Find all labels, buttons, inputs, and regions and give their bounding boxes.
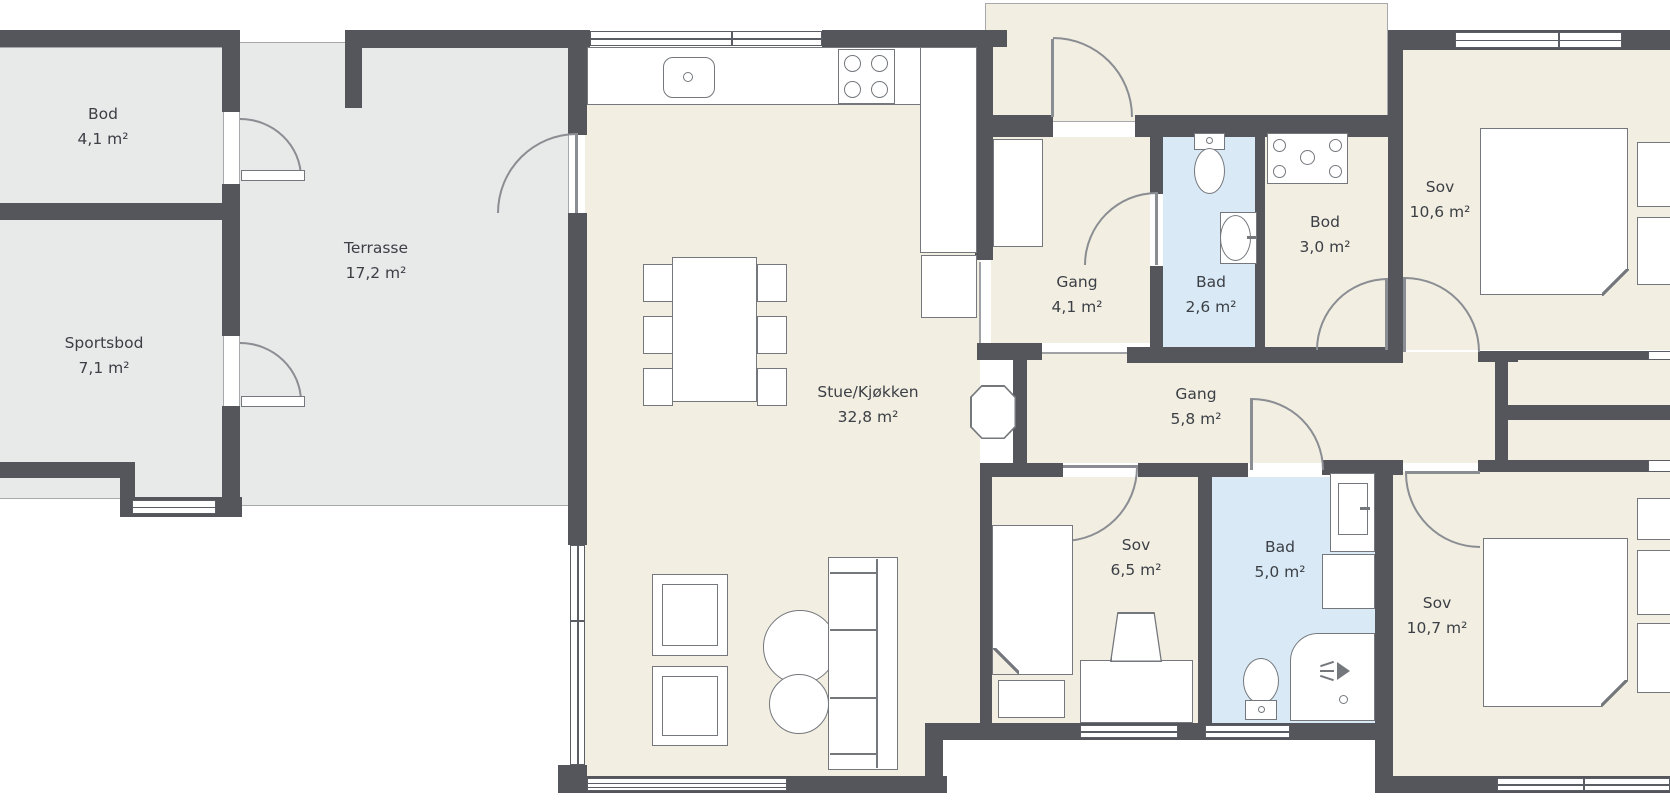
wall [1508, 405, 1670, 420]
window-sov-2-south [1080, 725, 1178, 738]
room-area: 17,2 m² [344, 261, 408, 286]
dining-chair [757, 264, 787, 302]
fridge-cabinet [921, 255, 977, 318]
nightstand [998, 680, 1065, 718]
wall [1388, 30, 1403, 363]
wall [1375, 472, 1393, 782]
shower-spray-line [1320, 670, 1334, 672]
room-label-sov-3: Sov 10,7 m² [1407, 591, 1468, 641]
room-area: 4,1 m² [1052, 295, 1103, 320]
bed-fold-corner [1602, 269, 1629, 296]
wall [558, 765, 587, 793]
nightstand [1637, 498, 1670, 540]
room-label-sportsbod: Sportsbod 7,1 m² [65, 331, 144, 381]
door-leaf-bad-stor[interactable] [1250, 398, 1253, 470]
window-sov-3-south [1497, 778, 1670, 791]
desk [1080, 660, 1193, 723]
coffee-table-round [769, 674, 829, 734]
wall-stub-terrasse [345, 48, 362, 108]
room-label-stue-kjokken: Stue/Kjøkken 32,8 m² [817, 380, 918, 430]
door-leaf-sov-1[interactable] [1403, 277, 1406, 352]
open-passage-line [1042, 352, 1127, 354]
wall-jamb [1648, 351, 1670, 360]
open-passage-line [979, 262, 981, 343]
room-area: 10,7 m² [1407, 616, 1468, 641]
room-label-bod-inne: Bod 3,0 m² [1300, 210, 1351, 260]
window-bad-stor-south [1205, 725, 1290, 738]
sofa-cushion-line [830, 697, 876, 699]
room-area: 10,6 m² [1410, 200, 1471, 225]
wall [1150, 266, 1163, 347]
wall-entrance-left [983, 115, 1053, 137]
dining-table [672, 257, 757, 402]
door-leaf-bod-ute[interactable] [241, 170, 305, 181]
shower-head-icon [1337, 662, 1350, 680]
basin-faucet [1247, 236, 1257, 239]
washer-knob [1273, 165, 1286, 178]
room-name: Bad [1186, 270, 1237, 295]
wood-stove-icon [970, 385, 1016, 439]
dining-chair [757, 368, 787, 406]
wall [1150, 137, 1163, 194]
wall [1495, 352, 1508, 470]
room-name: Sov [1111, 533, 1162, 558]
door-leaf-bad-liten[interactable] [1155, 192, 1158, 265]
room-name: Gang [1052, 270, 1103, 295]
wall [568, 47, 587, 135]
room-label-bod-ute: Bod 4,1 m² [78, 102, 129, 152]
toilet-bowl-icon [1243, 658, 1279, 704]
room-name: Sov [1407, 591, 1468, 616]
dining-chair [643, 368, 673, 406]
room-name: Bad [1255, 535, 1306, 560]
room-name: Sov [1410, 175, 1471, 200]
entrance-porch [985, 3, 1388, 122]
floor-plan: Bod 4,1 m² Sportsbod 7,1 m² Terrasse 17,… [0, 0, 1670, 800]
window-stue-west [570, 545, 585, 765]
wall [0, 203, 222, 220]
wall-jamb [1648, 460, 1670, 472]
room-area: 5,0 m² [1255, 560, 1306, 585]
wall [1198, 463, 1212, 723]
room-area: 4,1 m² [78, 127, 129, 152]
burner-icon [871, 81, 888, 98]
window-sov-1 [1455, 32, 1622, 48]
room-name: Bod [1300, 210, 1351, 235]
armchair-seat [662, 584, 718, 646]
toilet-bowl-icon [1194, 148, 1225, 194]
coffee-table-round [763, 610, 837, 684]
washer-knob [1329, 139, 1342, 152]
room-label-gang-entre: Gang 4,1 m² [1052, 270, 1103, 320]
door-leaf-terrasse[interactable] [575, 133, 578, 213]
room-area: 32,8 m² [817, 405, 918, 430]
room-name: Gang [1171, 382, 1222, 407]
room-area: 6,5 m² [1111, 558, 1162, 583]
room-name: Terrasse [344, 236, 408, 261]
wardrobe-closet [993, 139, 1043, 247]
room-name: Bod [78, 102, 129, 127]
room-label-sov-2: Sov 6,5 m² [1111, 533, 1162, 583]
wall [977, 343, 1042, 360]
wall [222, 47, 240, 112]
door-leaf-bod-inne[interactable] [1385, 278, 1388, 350]
wall [0, 462, 135, 478]
wall [222, 184, 240, 336]
door-leaf-entrance[interactable] [1051, 39, 1054, 117]
washer-drum [1300, 150, 1315, 165]
bed-pillow [1637, 142, 1670, 207]
bed-fold-corner [1601, 680, 1628, 707]
wall [1478, 460, 1518, 472]
closet-strip-south [1508, 420, 1670, 460]
room-area: 5,8 m² [1171, 407, 1222, 432]
desk-chair-icon [1110, 612, 1162, 662]
sofa-back-line [876, 559, 878, 768]
room-label-bad-stor: Bad 5,0 m² [1255, 535, 1306, 585]
wall [1518, 351, 1648, 360]
window-sportsbod [132, 500, 216, 514]
door-leaf-sov-3[interactable] [1405, 471, 1480, 474]
wall [568, 213, 587, 545]
washer-knob [1273, 139, 1286, 152]
toilet-flush-dot [1258, 706, 1265, 713]
washing-machine-2 [1322, 554, 1375, 609]
vanity-handle [1360, 507, 1370, 510]
dining-chair [643, 316, 673, 354]
window-kitchen [590, 31, 822, 46]
dining-chair [757, 316, 787, 354]
shower-drain-dot [1339, 695, 1348, 704]
room-area: 3,0 m² [1300, 235, 1351, 260]
burner-icon [871, 55, 888, 72]
wall [980, 463, 1063, 477]
sofa-cushion-line [830, 572, 876, 574]
room-label-bad-liten: Bad 2,6 m² [1186, 270, 1237, 320]
room-label-terrasse: Terrasse 17,2 m² [344, 236, 408, 286]
sink-drain-icon [683, 72, 693, 82]
sofa-cushion-line [830, 753, 876, 755]
bed-pillow [1637, 217, 1670, 285]
room-label-sov-1: Sov 10,6 m² [1410, 175, 1471, 225]
sofa-cushion-line [830, 629, 876, 631]
bed-pillow [1637, 550, 1670, 615]
wall [1518, 460, 1648, 472]
sofa [828, 557, 898, 770]
closet-strip-north [1508, 358, 1670, 405]
wall [1138, 463, 1248, 477]
armchair-seat [662, 676, 718, 736]
wall [345, 30, 590, 48]
door-leaf-sportsbod[interactable] [241, 396, 305, 407]
burner-icon [844, 81, 861, 98]
wall [0, 30, 240, 47]
shower-cabin [1290, 633, 1375, 721]
kitchen-counter-right [920, 47, 977, 253]
washer-knob [1329, 165, 1342, 178]
wall [975, 30, 993, 260]
room-area: 7,1 m² [65, 356, 144, 381]
door-leaf-sov-2[interactable] [1063, 465, 1138, 468]
toilet-flush-dot [1206, 137, 1213, 144]
bed-pillow [1637, 623, 1670, 693]
dining-chair [643, 264, 673, 302]
burner-icon [844, 55, 861, 72]
room-area: 2,6 m² [1186, 295, 1237, 320]
room-name: Sportsbod [65, 331, 144, 356]
bed-fold-corner [993, 648, 1019, 674]
room-name: Stue/Kjøkken [817, 380, 918, 405]
room-label-gang-midt: Gang 5,8 m² [1171, 382, 1222, 432]
wall [980, 463, 992, 727]
window-stue-south [587, 778, 787, 791]
wall-entrance-right [1135, 115, 1388, 137]
